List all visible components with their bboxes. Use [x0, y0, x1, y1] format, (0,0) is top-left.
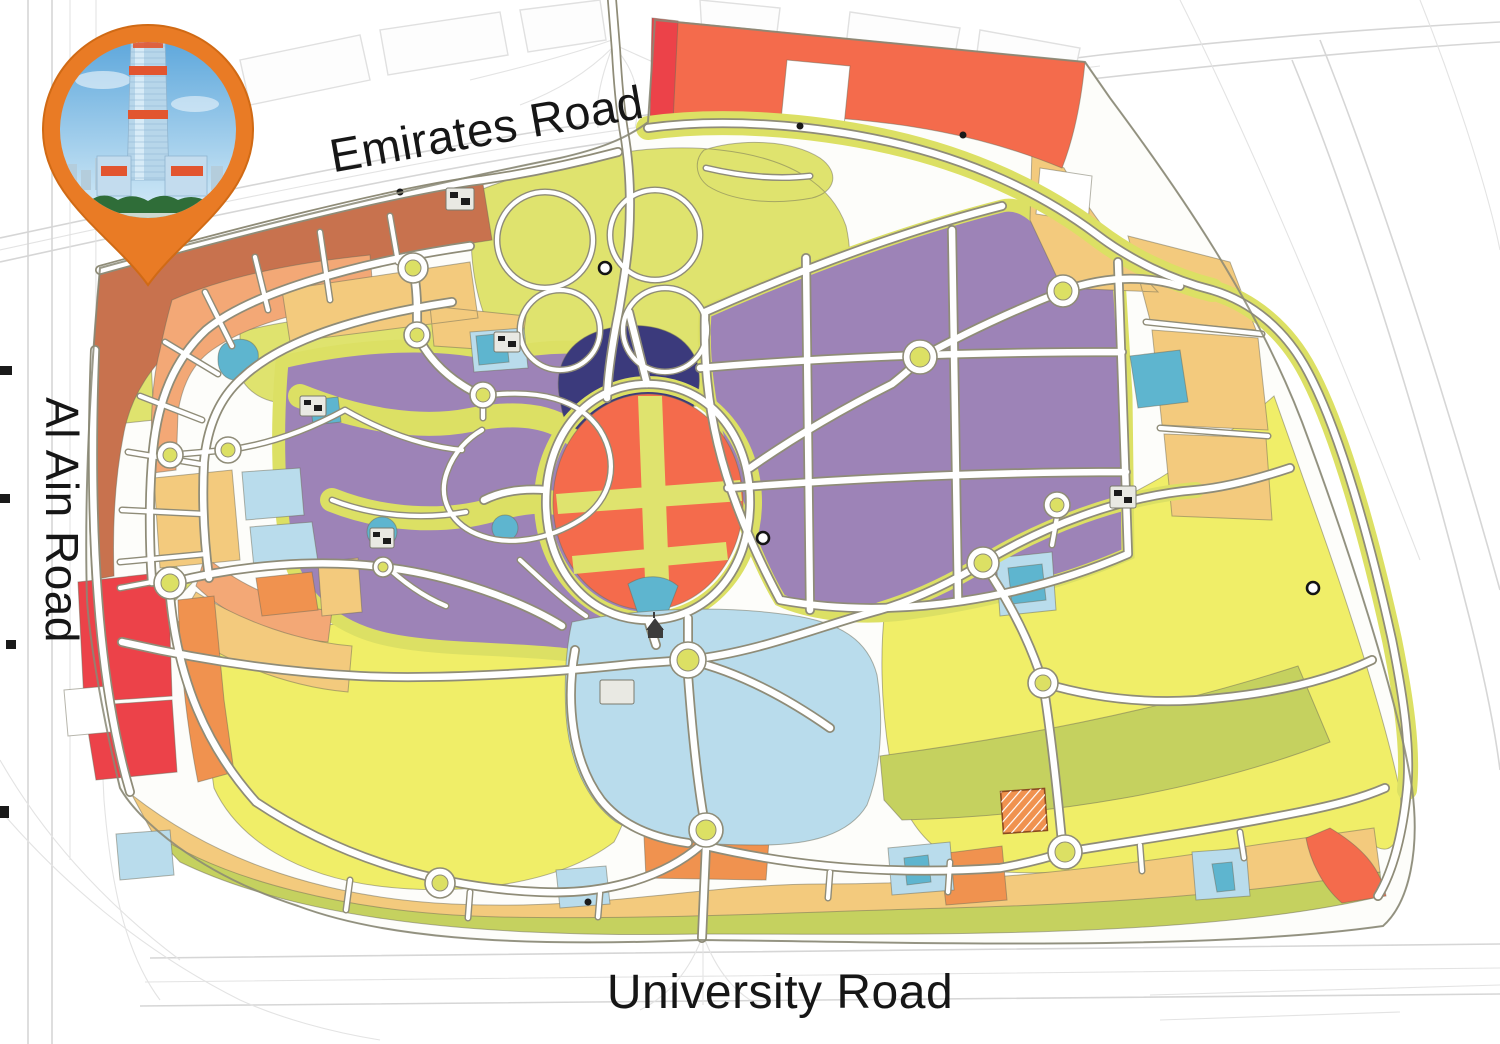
roundabout: [157, 442, 183, 468]
well-marker: [1307, 582, 1319, 594]
point-marker: [797, 123, 804, 130]
building-footprint-icon: [1110, 486, 1136, 508]
point-marker: [960, 132, 967, 139]
well-marker: [599, 262, 611, 274]
roundabout: [404, 322, 430, 348]
roundabout: [398, 253, 428, 283]
roundabout: [215, 437, 241, 463]
building-footprint-icon: [370, 528, 394, 548]
roundabout: [1048, 835, 1082, 869]
roundabout: [1028, 668, 1058, 698]
roundabout: [154, 567, 186, 599]
roundabout: [689, 813, 723, 847]
building-footprint-icon: [494, 332, 520, 352]
building-footprint-icon: [300, 396, 326, 416]
culdesac-circle: [373, 557, 393, 577]
photo-cloud: [75, 71, 131, 89]
master-plan-map: Emirates Road Al Ain Road University Roa…: [0, 0, 1500, 1044]
point-marker: [585, 899, 592, 906]
roundabout: [425, 868, 455, 898]
roundabout: [1047, 275, 1079, 307]
roundabout: [903, 340, 937, 374]
photo-cloud: [171, 96, 219, 112]
well-marker: [757, 532, 769, 544]
label-al-ain-road: Al Ain Road: [36, 397, 88, 643]
culdesac-circle: [470, 382, 496, 408]
building-footprint-icon: [600, 680, 634, 704]
district-zones: [64, 18, 1401, 935]
label-university-road: University Road: [607, 966, 953, 1019]
roundabout: [670, 642, 706, 678]
hatched-parcel-lines: [1001, 789, 1048, 834]
building-footprint-icon: [446, 188, 474, 210]
culdesac-circle: [1044, 492, 1070, 518]
edge-marks: [0, 366, 16, 818]
roundabout: [967, 547, 999, 579]
